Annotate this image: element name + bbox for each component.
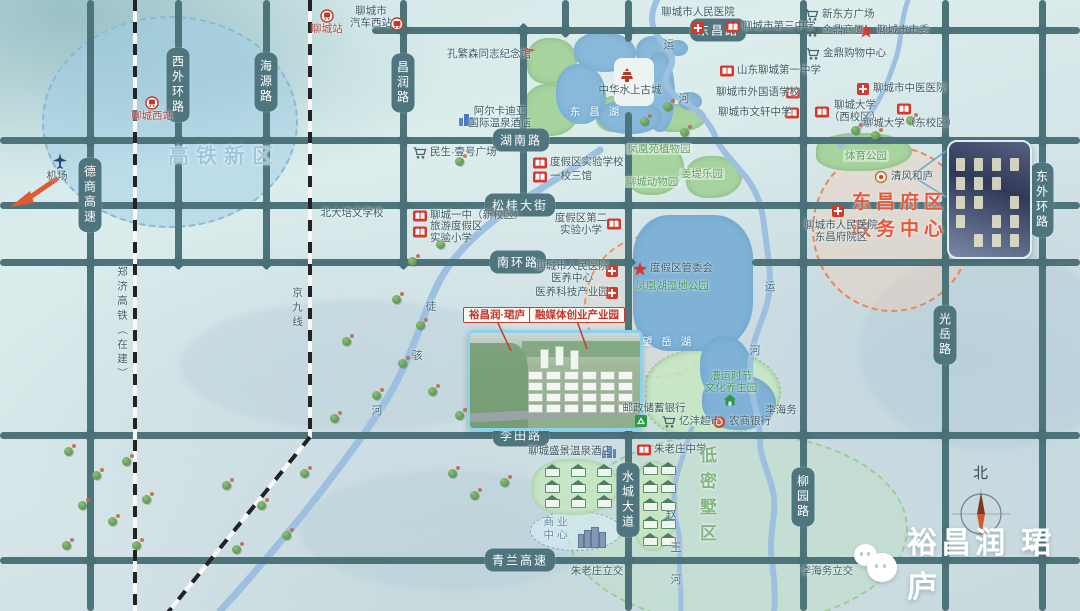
label-lihaiwu: 李海务 — [765, 404, 797, 416]
hospital-cross-icon — [832, 205, 844, 217]
tree-icon — [663, 102, 672, 111]
tree-icon — [392, 295, 401, 304]
tree-icon — [398, 359, 407, 368]
photo-building — [600, 371, 615, 380]
tree-icon — [257, 501, 266, 510]
commercial-building-icon — [584, 530, 591, 548]
label-second-experimental-primary: 度假区第二实验小学 — [555, 212, 608, 236]
tree-icon — [680, 128, 689, 137]
villa-icon — [545, 499, 560, 508]
label-liaocheng-west-station: 聊城西站 — [131, 110, 173, 122]
label-jinding-shopping-center: 金鼎购物中心 — [823, 47, 886, 59]
road-badge: 水城大道 — [617, 463, 640, 537]
school-icon — [607, 219, 621, 230]
tree-icon — [640, 117, 649, 126]
label-arcadia-hotel: 阿尔卡迪亚国际温泉酒店 — [469, 105, 532, 129]
tree-icon — [122, 457, 131, 466]
railway-zhengji — [133, 0, 137, 611]
ancient-city-icon — [620, 68, 634, 82]
road-intersection — [795, 197, 811, 213]
road-badge: 青兰高速 — [485, 549, 555, 572]
river-char-canal: 河 — [679, 93, 690, 105]
label-zhulaozhuang-interchange: 朱老庄立交 — [571, 565, 624, 577]
road-changrun — [400, 0, 407, 262]
corner-photo-inset — [947, 140, 1032, 259]
label-yiyang-center: 聊城市人民医院医养中心 — [535, 260, 609, 284]
label-municipal-committee: 聊城市市委 — [877, 24, 930, 36]
photo-building — [564, 371, 579, 380]
commercial-building-icon — [599, 532, 606, 548]
label-qingfeng-helu: 清风和庐 — [891, 170, 933, 182]
tree-icon — [372, 391, 381, 400]
road-intersection — [1034, 132, 1050, 148]
photo-building — [528, 393, 543, 402]
villa-icon — [571, 468, 586, 477]
river-char-zhaowang: 赵 — [666, 510, 677, 522]
label-liaocheng-university-east: 聊城大学（东校区） — [863, 117, 958, 129]
photo-building — [992, 177, 1001, 190]
photo-building — [528, 371, 543, 380]
map-canvas: 北 裕昌润 珺庐 东昌路湖南路松桂大街南环路李田路青兰高速德商高速西外环路海源路… — [0, 0, 1080, 611]
school-icon — [815, 107, 829, 118]
photo-building — [600, 393, 615, 402]
label-shangye-center: 商业中心 — [544, 516, 571, 542]
label-liaocheng-station: 聊城站 — [311, 23, 343, 35]
qingfeng-helu-logo-icon — [875, 171, 888, 184]
label-fenghuangyuan-botanical: 凤凰苑植物园 — [626, 143, 693, 155]
label-fenghuang-wetland-park: 凤凰湖湿地公园 — [635, 280, 709, 292]
label-dimishuqu: 低密墅区 — [700, 446, 712, 550]
photo-building — [956, 215, 965, 228]
photo-tower — [540, 349, 549, 369]
villa-icon — [643, 484, 658, 493]
lake-island — [614, 58, 654, 106]
villa-icon — [545, 484, 560, 493]
tree-icon — [232, 545, 241, 554]
label-rural-bank: 农商银行 — [729, 415, 771, 427]
train-station-icon — [145, 96, 159, 110]
villa-icon — [643, 537, 658, 546]
river-char-canal: 运 — [765, 281, 776, 293]
photo-building — [992, 234, 1001, 247]
label-minsheng-plaza: 民生·壹号广场 — [430, 146, 497, 158]
villa-icon — [597, 468, 612, 477]
river-char-tuohai: 骇 — [412, 350, 423, 362]
road-intersection — [395, 132, 411, 148]
road-intersection — [795, 254, 811, 270]
photo-building — [528, 382, 543, 391]
road-xiwaihuan — [175, 0, 182, 262]
tree-icon — [92, 471, 101, 480]
railway-jingjiu — [308, 0, 312, 438]
river-char-canal: 河 — [750, 345, 761, 357]
label-jinding-mall: 金鼎商厦 — [822, 24, 864, 36]
photo-building — [582, 404, 597, 413]
label-no1-middle-school: 山东聊城第一中学 — [737, 64, 821, 76]
label-xindongfang-plaza: 新东方广场 — [822, 8, 875, 20]
photo-building — [564, 382, 579, 391]
photo-building — [1010, 158, 1019, 171]
tree-icon — [132, 541, 141, 550]
label-jingjiu-line: 京九线 — [291, 287, 303, 331]
road-deshang — [87, 0, 94, 611]
road-badge: 德商高速 — [79, 158, 102, 232]
label-no3-middle-school: 聊城市第三中学 — [742, 20, 816, 32]
photo-building — [974, 234, 983, 247]
villa-icon — [571, 499, 586, 508]
label-yifeng-supermarket: 亿沣超市 — [679, 415, 721, 427]
road-intersection — [258, 254, 274, 270]
label-yixiao-sanguan: 一校三馆 — [550, 170, 592, 182]
school-icon — [637, 445, 651, 456]
photo-building — [974, 177, 983, 190]
tree-icon — [470, 491, 479, 500]
photo-building — [974, 158, 983, 171]
photo-building — [546, 382, 561, 391]
label-renmin-hospital-dongchangfu: 聊城市人民医院东昌府院区 — [804, 219, 878, 243]
tree-icon — [62, 541, 71, 550]
label-kongfansen-memorial: 孔繁森同志纪念馆 — [447, 48, 531, 60]
road-intersection — [82, 254, 98, 270]
photo-building — [974, 196, 983, 209]
brand-watermark: 裕昌润 珺庐 — [854, 536, 1080, 588]
tree-icon — [78, 501, 87, 510]
shopping-icon — [662, 416, 677, 429]
shopping-icon — [413, 147, 428, 160]
villa-icon — [661, 484, 676, 493]
school-icon — [533, 158, 547, 169]
road-intersection — [937, 22, 953, 38]
villa-icon — [643, 502, 658, 511]
hospital-cross-icon — [692, 22, 704, 34]
photo-building — [1010, 234, 1019, 247]
photo-building — [618, 382, 633, 391]
tree-icon — [851, 126, 860, 135]
school-icon — [413, 227, 427, 238]
photo-building — [956, 158, 965, 171]
road-badge: 柳园路 — [792, 468, 815, 527]
photo-building — [564, 393, 579, 402]
photo-building — [618, 393, 633, 402]
railway-jingjiu-diagonal — [166, 436, 311, 611]
road-haiyuan — [263, 0, 270, 262]
photo-building — [1010, 196, 1019, 209]
photo-building — [546, 371, 561, 380]
label-caoyun-wellness-park: 漕运时节文化养生园 — [705, 370, 758, 394]
label-resort-management-committee: 度假区管委会 — [650, 262, 713, 274]
river-char-tuohai: 徒 — [426, 301, 437, 313]
road-badge: 光岳路 — [934, 306, 957, 365]
label-zhengji-hsr: 郑济高铁（在建） — [116, 266, 128, 382]
road-intersection — [258, 197, 274, 213]
photo-building — [582, 382, 597, 391]
school-icon — [726, 22, 740, 33]
photo-building — [546, 393, 561, 402]
photo-tower — [555, 346, 564, 366]
label-liaocheng-zoo: 聊城动物园 — [624, 176, 681, 188]
commercial-building-icon — [591, 527, 599, 548]
label-postal-bank: 邮政储蓄银行 — [623, 402, 686, 414]
villa-icon — [545, 468, 560, 477]
label-beida-peiwen-school: 北大培文学校 — [321, 207, 384, 219]
villa-icon — [661, 466, 676, 475]
school-icon — [413, 211, 427, 222]
label-jiangdi-park: 姜堤乐园 — [679, 168, 725, 180]
villa-icon — [643, 520, 658, 529]
river-char-tuohai: 河 — [372, 405, 383, 417]
tree-icon — [330, 414, 339, 423]
villa-icon — [643, 466, 658, 475]
road-badge: 海源路 — [255, 53, 278, 112]
tree-icon — [142, 495, 151, 504]
photo-building — [564, 404, 579, 413]
villa-icon — [571, 484, 586, 493]
road-badge: 昌润路 — [392, 54, 415, 113]
photo-building — [618, 371, 633, 380]
road-intersection — [620, 197, 636, 213]
school-icon — [533, 172, 547, 183]
label-project-name: 裕昌润·珺庐 — [463, 307, 531, 323]
project-photo-inset — [467, 330, 643, 431]
photo-building — [992, 158, 1001, 171]
hospital-cross-icon — [857, 83, 869, 95]
road-intersection — [170, 254, 186, 270]
label-dongchang-lake: 东 昌 湖 — [570, 106, 622, 118]
shopping-icon — [806, 48, 821, 61]
label-foreign-language-school: 聊城市外国语学校 — [716, 86, 800, 98]
photo-tower — [570, 350, 579, 370]
label-media-industry-park: 融媒体创业产业园 — [529, 307, 625, 323]
brand-watermark-text: 裕昌润 珺庐 — [907, 518, 1080, 606]
label-wangyue-lake: 望 岳 湖 — [642, 336, 694, 348]
school-icon — [897, 104, 911, 115]
tree-icon — [416, 321, 425, 330]
photo-building — [582, 393, 597, 402]
label-renmin-hospital: 聊城市人民医院 — [661, 6, 735, 18]
river-char-zhaowang: 王 — [671, 542, 682, 554]
airport-icon — [52, 153, 68, 169]
label-sports-park: 体育公园 — [843, 150, 889, 162]
train-station-icon — [320, 9, 334, 23]
tree-icon — [428, 387, 437, 396]
tree-icon — [871, 131, 880, 140]
school-icon — [720, 66, 734, 77]
label-zhonghua-water-city: 中华水上古城 — [599, 84, 662, 96]
tree-icon — [64, 447, 73, 456]
wellness-park-icon — [724, 395, 736, 406]
villa-icon — [597, 484, 612, 493]
road-intersection — [515, 22, 531, 38]
road-intersection — [1034, 22, 1050, 38]
river-char-canal: 运 — [664, 39, 675, 51]
government-star-icon — [633, 262, 647, 276]
photo-building — [528, 404, 543, 413]
villa-icon — [597, 499, 612, 508]
photo-building — [1010, 215, 1019, 228]
label-lihaiwu-interchange: 李海务立交 — [801, 565, 854, 577]
road-intersection — [395, 197, 411, 213]
label-wenxuan-middle-school: 聊城市文轩中学 — [718, 106, 792, 118]
bus-station-icon — [390, 17, 404, 31]
tree-icon — [455, 157, 464, 166]
label-bus-west-station: 聊城市汽车西站 — [350, 5, 392, 29]
tree-icon — [108, 517, 117, 526]
tree-icon — [222, 481, 231, 490]
tree-icon — [455, 411, 464, 420]
photo-building — [582, 371, 597, 380]
road-intersection — [82, 427, 98, 443]
label-shengjing-hot-spring-hotel: 聊城盛景温泉酒店 — [528, 445, 612, 457]
river-char-zhaowang: 河 — [671, 574, 682, 586]
photo-building — [546, 404, 561, 413]
label-tcm-hospital: 聊城市中医医院 — [873, 82, 947, 94]
tree-icon — [448, 469, 457, 478]
tree-icon — [408, 257, 417, 266]
tree-icon — [300, 469, 309, 478]
label-airport: 机场 — [47, 170, 68, 182]
road-intersection — [795, 132, 811, 148]
photo-building — [992, 215, 1001, 228]
postal-bank-icon — [635, 415, 647, 427]
photo-building — [600, 382, 615, 391]
label-dujiaqu-experimental-school: 度假区实验学校 — [550, 156, 624, 168]
label-resort-primary-school: 旅游度假区实验小学 — [430, 220, 483, 244]
chat-bubble-icon — [867, 553, 897, 582]
tree-icon — [342, 337, 351, 346]
photo-building — [956, 177, 965, 190]
tree-icon — [282, 531, 291, 540]
label-yiyang-tech-park: 医养科技产业园 — [535, 286, 609, 298]
road-intersection — [82, 552, 98, 568]
label-gaotie-xinqu: 高铁新区 — [168, 151, 280, 163]
road-badge: 湖南路 — [493, 129, 549, 152]
road-intersection — [557, 22, 573, 38]
tree-icon — [500, 478, 509, 487]
photo-building — [956, 196, 965, 209]
photo-building — [600, 404, 615, 413]
compass-north-label: 北 — [952, 462, 1010, 483]
road-badge: 东外环路 — [1031, 163, 1054, 237]
